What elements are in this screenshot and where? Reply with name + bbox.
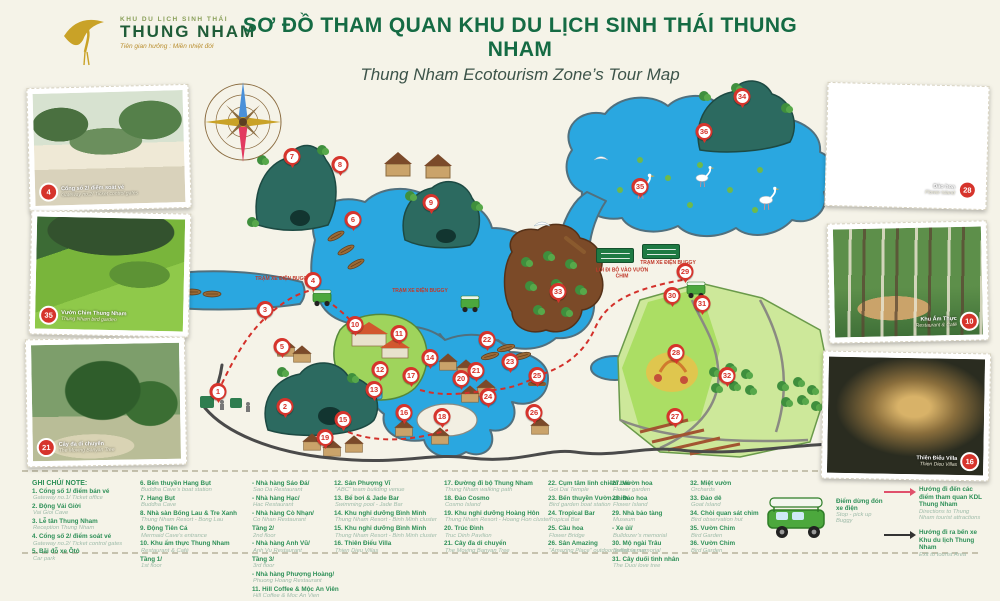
sign-board bbox=[596, 248, 634, 263]
legend-item-vn: 6. Bến thuyền Hang Bụt bbox=[140, 480, 237, 487]
legend-item-vn: 30. Mộ ngài Trâu bbox=[612, 540, 679, 547]
legend-item: 32. Miệt vườnOrchards bbox=[690, 480, 759, 494]
legend-item-vn: 12. Sân Phượng Vĩ bbox=[334, 480, 437, 487]
legend-item: 12. Sân Phượng Vĩ"ABC" team building ven… bbox=[334, 480, 437, 494]
photo-caption: 21Cây đa di chuyểnThe Moving Banyan Tree bbox=[37, 437, 115, 457]
map-marker-number: 3 bbox=[259, 304, 271, 316]
map-marker-number: 35 bbox=[634, 181, 646, 193]
legend-item-vn: 5. Bãi đỗ xe Ôtô bbox=[32, 548, 122, 555]
legend-item: 15. Khu nghỉ dưỡng Bình MinhThung Nham R… bbox=[334, 525, 437, 539]
legend-column-1: GHI CHÚ/ NOTE:1. Cổng số 1/ điểm bán véG… bbox=[32, 480, 122, 564]
legend-item-en: Sao Da Restaurant bbox=[253, 487, 339, 493]
legend-column-4: 12. Sân Phượng Vĩ"ABC" team building ven… bbox=[334, 480, 437, 556]
photo-marker-badge: 21 bbox=[37, 438, 56, 457]
photo-caption-en: The Moving Banyan Tree bbox=[59, 446, 115, 453]
legend-item-vn: 4. Cổng số 2/ điểm soát vé bbox=[32, 533, 122, 540]
map-marker-32[interactable]: 32 bbox=[719, 367, 736, 384]
legend-item: - Nhà hàng Anh Vũ/Anh Vu Restaurant bbox=[252, 540, 339, 554]
photo-marker-badge: 16 bbox=[960, 452, 979, 471]
legend-item-vn: Tầng 2/ bbox=[252, 525, 339, 532]
map-marker-3[interactable]: 3 bbox=[257, 301, 274, 318]
legend-item-en: Gateway no.1/ Ticket office bbox=[33, 495, 122, 501]
map-marker-2[interactable]: 2 bbox=[277, 398, 294, 415]
legend-item-en: Cosmo Island bbox=[445, 502, 550, 508]
map-marker-29[interactable]: 29 bbox=[677, 263, 694, 280]
map-marker-number: 9 bbox=[425, 197, 437, 209]
legend-item: 7. Hang BụtBuddha Cave bbox=[140, 495, 237, 509]
legend-column-8: 32. Miệt vườnOrchards33. Đảo dêGoat Isla… bbox=[690, 480, 759, 556]
legend-item-vn: 35. Vườn Chim bbox=[690, 525, 759, 532]
legend-item-vn: 17. Đường đi bộ Thung Nham bbox=[444, 480, 550, 487]
map-marker-number: 13 bbox=[368, 384, 380, 396]
map-marker-27[interactable]: 27 bbox=[667, 408, 684, 425]
direction-exit-en: Exit to tourist Area bbox=[919, 552, 984, 559]
map-marker-22[interactable]: 22 bbox=[479, 331, 496, 348]
buggy-stop-en: Stop - pick up Buggy bbox=[836, 512, 884, 524]
crane-logo-icon bbox=[58, 10, 112, 68]
legend-item-en: The Moving Banyan Tree bbox=[445, 548, 550, 554]
legend-item-en: Orchards bbox=[691, 487, 759, 493]
legend-item-vn: 27. Vườn hoa bbox=[612, 480, 679, 487]
legend-column-3: - Nhà hàng Sáo Đá/Sao Da Restaurant- Nhà… bbox=[252, 480, 339, 601]
photo-flower-island: 28Đảo hoaFlower Island bbox=[831, 88, 984, 204]
direction-exit: Hướng đi ra bến xe Khu du lịch Thung Nha… bbox=[884, 529, 984, 558]
direction-attractions-vn: Hướng đi đến các điểm tham quan KDL Thun… bbox=[919, 486, 984, 509]
map-marker-21[interactable]: 21 bbox=[468, 362, 485, 379]
field-roads bbox=[620, 300, 808, 448]
photo-stamp-restaurant: 10Khu Ẩm ThựcRestaurant & Café bbox=[827, 220, 989, 343]
map-marker-number: 34 bbox=[736, 91, 748, 103]
page-subtitle: Thung Nham Ecotourism Zone’s Tour Map bbox=[235, 65, 805, 85]
legend-item: 33. Đảo dêGoat Island bbox=[690, 495, 759, 509]
map-marker-number: 32 bbox=[721, 370, 733, 382]
legend-item-en: Thung Nham Resort - Binh Minh cluster bbox=[335, 533, 437, 539]
legend-item-en: Truc Dinh Pavilion bbox=[445, 533, 550, 539]
legend-item: - Nhà hàng Hạc/Hac Restaurant bbox=[252, 495, 339, 509]
legend-item-vn: 13. Bể bơi & Jade Bar bbox=[334, 495, 437, 502]
photo-stamp-bird-garden: 35Vườn Chim Thung NhamThung Nham bird ga… bbox=[29, 210, 192, 337]
map-marker-25[interactable]: 25 bbox=[529, 367, 546, 384]
map-marker-31[interactable]: 31 bbox=[694, 295, 711, 312]
map-marker-28[interactable]: 28 bbox=[668, 344, 685, 361]
map-marker-number: 7 bbox=[286, 151, 298, 163]
legend-item: 6. Bến thuyền Hang BụtBuddha Cave’s boat… bbox=[140, 480, 237, 494]
map-marker-12[interactable]: 12 bbox=[372, 361, 389, 378]
buggy-stop-vn: Điểm dừng đón xe điện bbox=[836, 498, 884, 512]
photo-marker-badge: 35 bbox=[39, 306, 58, 325]
main-road bbox=[205, 365, 832, 461]
photo-marker-badge: 4 bbox=[39, 182, 58, 201]
map-marker-number: 11 bbox=[393, 328, 405, 340]
legend-item: 13. Bể bơi & Jade BarSwimming pool - Jad… bbox=[334, 495, 437, 509]
legend-item: 31. Cây duối tình nhânThe Duoi love tree bbox=[612, 556, 679, 570]
map-label-2: LỐI ĐI BỘ VÀO VƯỜN CHIM bbox=[594, 268, 650, 280]
legend-item-en: Co Nhan Restaurant bbox=[253, 517, 339, 523]
legend-item-vn: 33. Đảo dê bbox=[690, 495, 759, 502]
map-marker-number: 16 bbox=[398, 407, 410, 419]
photo-marker-badge: 28 bbox=[958, 180, 977, 199]
map-marker-number: 6 bbox=[347, 214, 359, 226]
legend-item-vn: 9. Động Tiên Cá bbox=[140, 525, 237, 532]
legend-item-vn: 19. Khu nghỉ dưỡng Hoàng Hôn bbox=[444, 510, 550, 517]
legend-item: 18. Đảo CosmoCosmo Island bbox=[444, 495, 550, 509]
legend-item: 17. Đường đi bộ Thung NhamThung Nham wal… bbox=[444, 480, 550, 494]
legend-item-en: Museum bbox=[613, 517, 679, 523]
legend-item-en: Thien Dieu Villas bbox=[335, 548, 437, 554]
mountains bbox=[256, 81, 794, 435]
legend-item-vn: - Xe ủi/ bbox=[612, 525, 679, 532]
legend-item: Tầng 3/3rd floor bbox=[252, 556, 339, 570]
photo-caption: 16Thiên Điểu VillaThien Dieu Villas bbox=[916, 451, 979, 471]
legend-item-en: Buddha Cave bbox=[141, 502, 237, 508]
legend-item-en: The Duoi love tree bbox=[613, 563, 679, 569]
legend-item-en: Buddha Cave’s boat station bbox=[141, 487, 237, 493]
map-marker-number: 2 bbox=[279, 401, 291, 413]
map-marker-18[interactable]: 18 bbox=[434, 408, 451, 425]
photo-caption-en: Thung Nham bird garden bbox=[61, 315, 126, 322]
direction-attractions-en: Directions to Thung Nham tourist attract… bbox=[919, 509, 984, 522]
direction-key: Hướng đi đến các điểm tham quan KDL Thun… bbox=[884, 486, 984, 565]
map-marker-number: 25 bbox=[531, 370, 543, 382]
legend-item: - Xe ủi/Bulldozer’s memorial bbox=[612, 525, 679, 539]
legend-item: - Nhà hàng Sáo Đá/Sao Da Restaurant bbox=[252, 480, 339, 494]
map-marker-16[interactable]: 16 bbox=[396, 404, 413, 421]
legend-item: 11. Hill Coffee & Mộc An ViênHill Coffee… bbox=[252, 586, 339, 600]
legend-item-en: Bird Garden bbox=[691, 533, 759, 539]
legend-item-en: Vai Gioi Cave bbox=[33, 510, 122, 516]
map-marker-number: 4 bbox=[307, 275, 319, 287]
photo-bird-garden: 35Vườn Chim Thung NhamThung Nham bird ga… bbox=[35, 216, 185, 331]
legend-item-vn: Tầng 1/ bbox=[140, 556, 237, 563]
page-title: SƠ ĐỒ THAM QUAN KHU DU LỊCH SINH THÁI TH… bbox=[235, 14, 805, 62]
black-arrow-icon bbox=[884, 534, 914, 536]
legend-item: 35. Vườn ChimBird Garden bbox=[690, 525, 759, 539]
photo-caption: 35Vườn Chim Thung NhamThung Nham bird ga… bbox=[39, 306, 127, 327]
flower-rows bbox=[640, 420, 740, 454]
map-marker-number: 31 bbox=[696, 298, 708, 310]
legend-item-vn: Tầng 3/ bbox=[252, 556, 339, 563]
map-marker-35[interactable]: 35 bbox=[632, 178, 649, 195]
legend-item-en: Restaurant & Café bbox=[141, 548, 237, 554]
legend-item-en: Anh Vu Restaurant bbox=[253, 548, 339, 554]
legend-item-en: Thung Nham Resort - Binh Minh cluster bbox=[335, 517, 437, 523]
map-marker-number: 28 bbox=[670, 347, 682, 359]
map-marker-number: 23 bbox=[504, 356, 516, 368]
map-marker-number: 8 bbox=[334, 159, 346, 171]
photo-caption-en: Gateway no.2/ Ticket control gates bbox=[61, 190, 138, 198]
map-marker-7[interactable]: 7 bbox=[284, 148, 301, 165]
buggy-icon bbox=[762, 490, 832, 544]
legend-item-en: 3rd floor bbox=[253, 563, 339, 569]
legend-item-vn: 10. Khu ẩm thực Thung Nham bbox=[140, 540, 237, 547]
legend-item-en: Thung Nham walking path bbox=[445, 487, 550, 493]
legend-item-vn: - Nhà hàng Hạc/ bbox=[252, 495, 339, 502]
legend-item-en: Flower garden bbox=[613, 487, 679, 493]
legend-item-en: Gateway no.2/ Ticket control gates bbox=[33, 541, 122, 547]
map-marker-24[interactable]: 24 bbox=[480, 388, 497, 405]
legend-item-en: Hill Coffee & Moc An Vien bbox=[253, 593, 339, 599]
map-marker-number: 14 bbox=[424, 352, 436, 364]
legend-item-en: Hac Restaurant bbox=[253, 502, 339, 508]
photo-restaurant: 10Khu Ẩm ThựcRestaurant & Café bbox=[833, 226, 983, 337]
legend-item-en: Thung Nham Resort - Hoang Hon cluster bbox=[445, 517, 550, 523]
map-marker-19[interactable]: 19 bbox=[317, 429, 334, 446]
map-marker-number: 36 bbox=[698, 126, 710, 138]
legend-item: 27. Vườn hoaFlower garden bbox=[612, 480, 679, 494]
map-buggies bbox=[313, 282, 705, 312]
map-marker-number: 33 bbox=[552, 286, 564, 298]
map-marker-4[interactable]: 4 bbox=[305, 272, 322, 289]
map-marker-number: 10 bbox=[349, 319, 361, 331]
legend-item-en: Swimming pool - Jade Bar bbox=[335, 502, 437, 508]
legend-column-7: 27. Vườn hoaFlower garden28. Đảo hoaFlow… bbox=[612, 480, 679, 571]
map-marker-number: 22 bbox=[481, 334, 493, 346]
legend-item-vn: 15. Khu nghỉ dưỡng Bình Minh bbox=[334, 525, 437, 532]
map-marker-9[interactable]: 9 bbox=[423, 194, 440, 211]
legend-item: 5. Bãi đỗ xe ÔtôCar park bbox=[32, 548, 122, 562]
legend-item-en: Thung Nham Resort - Bong Lau bbox=[141, 517, 237, 523]
photo-stamp-villa: 16Thiên Điểu VillaThien Dieu Villas bbox=[821, 351, 991, 482]
sign-board bbox=[642, 244, 680, 259]
photo-villa: 16Thiên Điểu VillaThien Dieu Villas bbox=[827, 357, 985, 476]
map-marker-10[interactable]: 10 bbox=[347, 316, 364, 333]
map-marker-26[interactable]: 26 bbox=[526, 404, 543, 421]
red-arrow-icon bbox=[884, 491, 914, 493]
photo-caption-en: Thien Dieu Villas bbox=[916, 461, 957, 468]
map-marker-17[interactable]: 17 bbox=[403, 367, 420, 384]
map-marker-number: 18 bbox=[436, 411, 448, 423]
legend-item-vn: 32. Miệt vườn bbox=[690, 480, 759, 487]
map-marker-number: 24 bbox=[482, 391, 494, 403]
legend-item: 8. Nhà sàn Bống Lau & Tre XanhThung Nham… bbox=[140, 510, 237, 524]
legend-item: 20. Trúc ĐìnhTruc Dinh Pavilion bbox=[444, 525, 550, 539]
legend-item-vn: 16. Thiên Điểu Villa bbox=[334, 540, 437, 547]
legend-item: 19. Khu nghỉ dưỡng Hoàng HônThung Nham R… bbox=[444, 510, 550, 524]
legend-item-en: Reception Thung Nham bbox=[33, 525, 122, 531]
photo-gate: 4Cổng số 2/ điểm soát véGateway no.2/ Ti… bbox=[33, 90, 186, 206]
legend-item: - Nhà hàng Cò Nhạn/Co Nhan Restaurant bbox=[252, 510, 339, 524]
map-marker-30[interactable]: 30 bbox=[664, 287, 681, 304]
stilt-houses bbox=[384, 152, 452, 178]
legend-item-en: Mermaid Cave’s entrance bbox=[141, 533, 237, 539]
photo-caption: 4Cổng số 2/ điểm soát véGateway no.2/ Ti… bbox=[39, 180, 138, 202]
legend-item-en: 2nd floor bbox=[253, 533, 339, 539]
map-marker-number: 19 bbox=[319, 432, 331, 444]
legend-item-vn: 20. Trúc Đình bbox=[444, 525, 550, 532]
legend-item-vn: 29. Nhà bảo tàng bbox=[612, 510, 679, 517]
map-label-0: TRẠM XE ĐIỆN BUGGY bbox=[255, 277, 311, 283]
legend-column-2: 6. Bến thuyền Hang BụtBuddha Cave’s boat… bbox=[140, 480, 237, 571]
entrance-gate bbox=[200, 396, 250, 412]
photo-banyan: 21Cây đa di chuyểnThe Moving Banyan Tree bbox=[31, 343, 181, 462]
map-label-1: TRẠM XE ĐIỆN BUGGY bbox=[392, 289, 448, 295]
legend-item-vn: 18. Đảo Cosmo bbox=[444, 495, 550, 502]
legend-item-vn: 28. Đảo hoa bbox=[612, 495, 679, 502]
legend-title: GHI CHÚ/ NOTE: bbox=[32, 480, 122, 487]
legend-item: 4. Cổng số 2/ điểm soát véGateway no.2/ … bbox=[32, 533, 122, 547]
legend-item-vn: - Nhà hàng Cò Nhạn/ bbox=[252, 510, 339, 517]
photo-caption-en: Restaurant & Café bbox=[916, 321, 957, 328]
map-marker-6[interactable]: 6 bbox=[345, 211, 362, 228]
photo-stamp-gate: 4Cổng số 2/ điểm soát véGateway no.2/ Ti… bbox=[26, 84, 191, 212]
legend-item: 36. Vườn ChimBird Garden bbox=[690, 540, 759, 554]
map-marker-13[interactable]: 13 bbox=[366, 381, 383, 398]
legend-item: 29. Nhà bảo tàngMuseum bbox=[612, 510, 679, 524]
photo-marker-badge: 10 bbox=[960, 312, 979, 331]
legend-item: 14. Khu nghỉ dưỡng Bình MinhThung Nham R… bbox=[334, 510, 437, 524]
legend-item-vn: 11. Hill Coffee & Mộc An Viên bbox=[252, 586, 339, 593]
legend-item-vn: 34. Chòi quan sát chim bbox=[690, 510, 759, 517]
legend-item: 2. Động Vái GiờiVai Gioi Cave bbox=[32, 503, 122, 517]
legend-item-en: Bird observation hut bbox=[691, 517, 759, 523]
photo-caption: 10Khu Ẩm ThựcRestaurant & Café bbox=[916, 312, 980, 332]
legend-item-en: Bulldozer’s memorial bbox=[613, 533, 679, 539]
photo-caption: 28Đảo hoaFlower Island bbox=[925, 179, 977, 199]
legend-item-en: Buffalo’s memorial bbox=[613, 548, 679, 554]
photo-stamp-flower-island: 28Đảo hoaFlower Island bbox=[824, 82, 989, 210]
map-marker-36[interactable]: 36 bbox=[696, 123, 713, 140]
map-marker-15[interactable]: 15 bbox=[335, 411, 352, 428]
legend-item-en: Phuong Hoang Restaurant bbox=[253, 578, 339, 584]
map-marker-number: 15 bbox=[337, 414, 349, 426]
map-marker-number: 30 bbox=[666, 290, 678, 302]
map-marker-34[interactable]: 34 bbox=[734, 88, 751, 105]
buggy-stop-note: Điểm dừng đón xe điện Stop - pick up Bug… bbox=[836, 498, 884, 524]
map-marker-23[interactable]: 23 bbox=[502, 353, 519, 370]
legend-item-vn: - Nhà hàng Anh Vũ/ bbox=[252, 540, 339, 547]
legend-item-en: 1st floor bbox=[141, 563, 237, 569]
bridges bbox=[530, 238, 584, 384]
map-marker-number: 12 bbox=[374, 364, 386, 376]
legend-item-vn: - Nhà hàng Phượng Hoàng/ bbox=[252, 571, 339, 578]
photo-stamp-banyan: 21Cây đa di chuyểnThe Moving Banyan Tree bbox=[25, 337, 187, 468]
legend-item-vn: 36. Vườn Chim bbox=[690, 540, 759, 547]
legend-item-en: Flower Island bbox=[613, 502, 679, 508]
logo: KHU DU LỊCH SINH THÁI THUNG NHAM Tiên gi… bbox=[58, 10, 258, 68]
legend-item: - Nhà hàng Phượng Hoàng/Phuong Hoang Res… bbox=[252, 571, 339, 585]
map-marker-number: 17 bbox=[405, 370, 417, 382]
legend-item: 10. Khu ẩm thực Thung NhamRestaurant & C… bbox=[140, 540, 237, 554]
legend-item-vn: 3. Lễ tân Thung Nham bbox=[32, 518, 122, 525]
legend-item-vn: 8. Nhà sàn Bống Lau & Tre Xanh bbox=[140, 510, 237, 517]
map-marker-33[interactable]: 33 bbox=[550, 283, 567, 300]
map-marker-number: 29 bbox=[679, 266, 691, 278]
legend-item: 34. Chòi quan sát chimBird observation h… bbox=[690, 510, 759, 524]
direction-exit-vn: Hướng đi ra bến xe Khu du lịch Thung Nha… bbox=[919, 529, 984, 552]
legend-item-vn: 7. Hang Bụt bbox=[140, 495, 237, 502]
map-marker-number: 27 bbox=[669, 411, 681, 423]
legend-column-5: 17. Đường đi bộ Thung NhamThung Nham wal… bbox=[444, 480, 550, 556]
legend-item-vn: 31. Cây duối tình nhân bbox=[612, 556, 679, 563]
legend-item-en: Goat Island bbox=[691, 502, 759, 508]
map-marker-number: 1 bbox=[212, 386, 224, 398]
legend-item: 9. Động Tiên CáMermaid Cave’s entrance bbox=[140, 525, 237, 539]
map-marker-1[interactable]: 1 bbox=[210, 383, 227, 400]
legend-item-en: "ABC" team building venue bbox=[335, 487, 437, 493]
legend-item-en: Bird Garden bbox=[691, 548, 759, 554]
map-marker-number: 21 bbox=[470, 365, 482, 377]
legend-item: 30. Mộ ngài TrâuBuffalo’s memorial bbox=[612, 540, 679, 554]
map-marker-number: 26 bbox=[528, 407, 540, 419]
map-marker-14[interactable]: 14 bbox=[422, 349, 439, 366]
map-marker-5[interactable]: 5 bbox=[274, 338, 291, 355]
compass-rose bbox=[205, 82, 281, 162]
legend-item: Tầng 1/1st floor bbox=[140, 556, 237, 570]
legend-item-vn: 21. Cây đa di chuyển bbox=[444, 540, 550, 547]
legend-item: Tầng 2/2nd floor bbox=[252, 525, 339, 539]
map-marker-number: 5 bbox=[276, 341, 288, 353]
crane-birds bbox=[534, 157, 780, 227]
legend-item-vn: 1. Cổng số 1/ điểm bán vé bbox=[32, 488, 122, 495]
legend-item: 3. Lễ tân Thung NhamReception Thung Nham bbox=[32, 518, 122, 532]
map-marker-8[interactable]: 8 bbox=[332, 156, 349, 173]
legend-item-en: Car park bbox=[33, 556, 122, 562]
legend-item: 21. Cây đa di chuyểnThe Moving Banyan Tr… bbox=[444, 540, 550, 554]
legend-item: 16. Thiên Điểu VillaThien Dieu Villas bbox=[334, 540, 437, 554]
direction-attractions: Hướng đi đến các điểm tham quan KDL Thun… bbox=[884, 486, 984, 522]
legend-item-vn: 2. Động Vái Giời bbox=[32, 503, 122, 510]
legend-item: 1. Cổng số 1/ điểm bán véGateway no.1/ T… bbox=[32, 488, 122, 502]
legend-item-vn: - Nhà hàng Sáo Đá/ bbox=[252, 480, 339, 487]
legend: Điểm dừng đón xe điện Stop - pick up Bug… bbox=[0, 476, 1000, 554]
photo-caption-en: Flower Island bbox=[925, 189, 955, 196]
map-marker-number: 20 bbox=[455, 373, 467, 385]
map-marker-11[interactable]: 11 bbox=[391, 325, 408, 342]
legend-item-vn: 14. Khu nghỉ dưỡng Bình Minh bbox=[334, 510, 437, 517]
legend-item: 28. Đảo hoaFlower Island bbox=[612, 495, 679, 509]
